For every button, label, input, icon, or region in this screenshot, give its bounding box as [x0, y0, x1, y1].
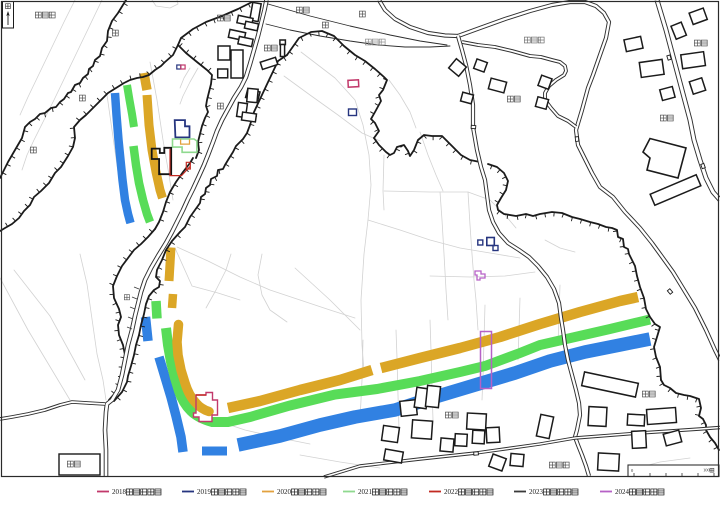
svg-text:2023: 2023	[529, 488, 544, 496]
svg-text:2020: 2020	[277, 488, 292, 496]
svg-text:2022: 2022	[444, 488, 459, 496]
svg-text:100: 100	[703, 468, 711, 473]
svg-text:2019: 2019	[197, 488, 212, 496]
svg-text:2024: 2024	[615, 488, 630, 496]
svg-text:2021: 2021	[358, 488, 373, 496]
svg-text:2018: 2018	[112, 488, 127, 496]
